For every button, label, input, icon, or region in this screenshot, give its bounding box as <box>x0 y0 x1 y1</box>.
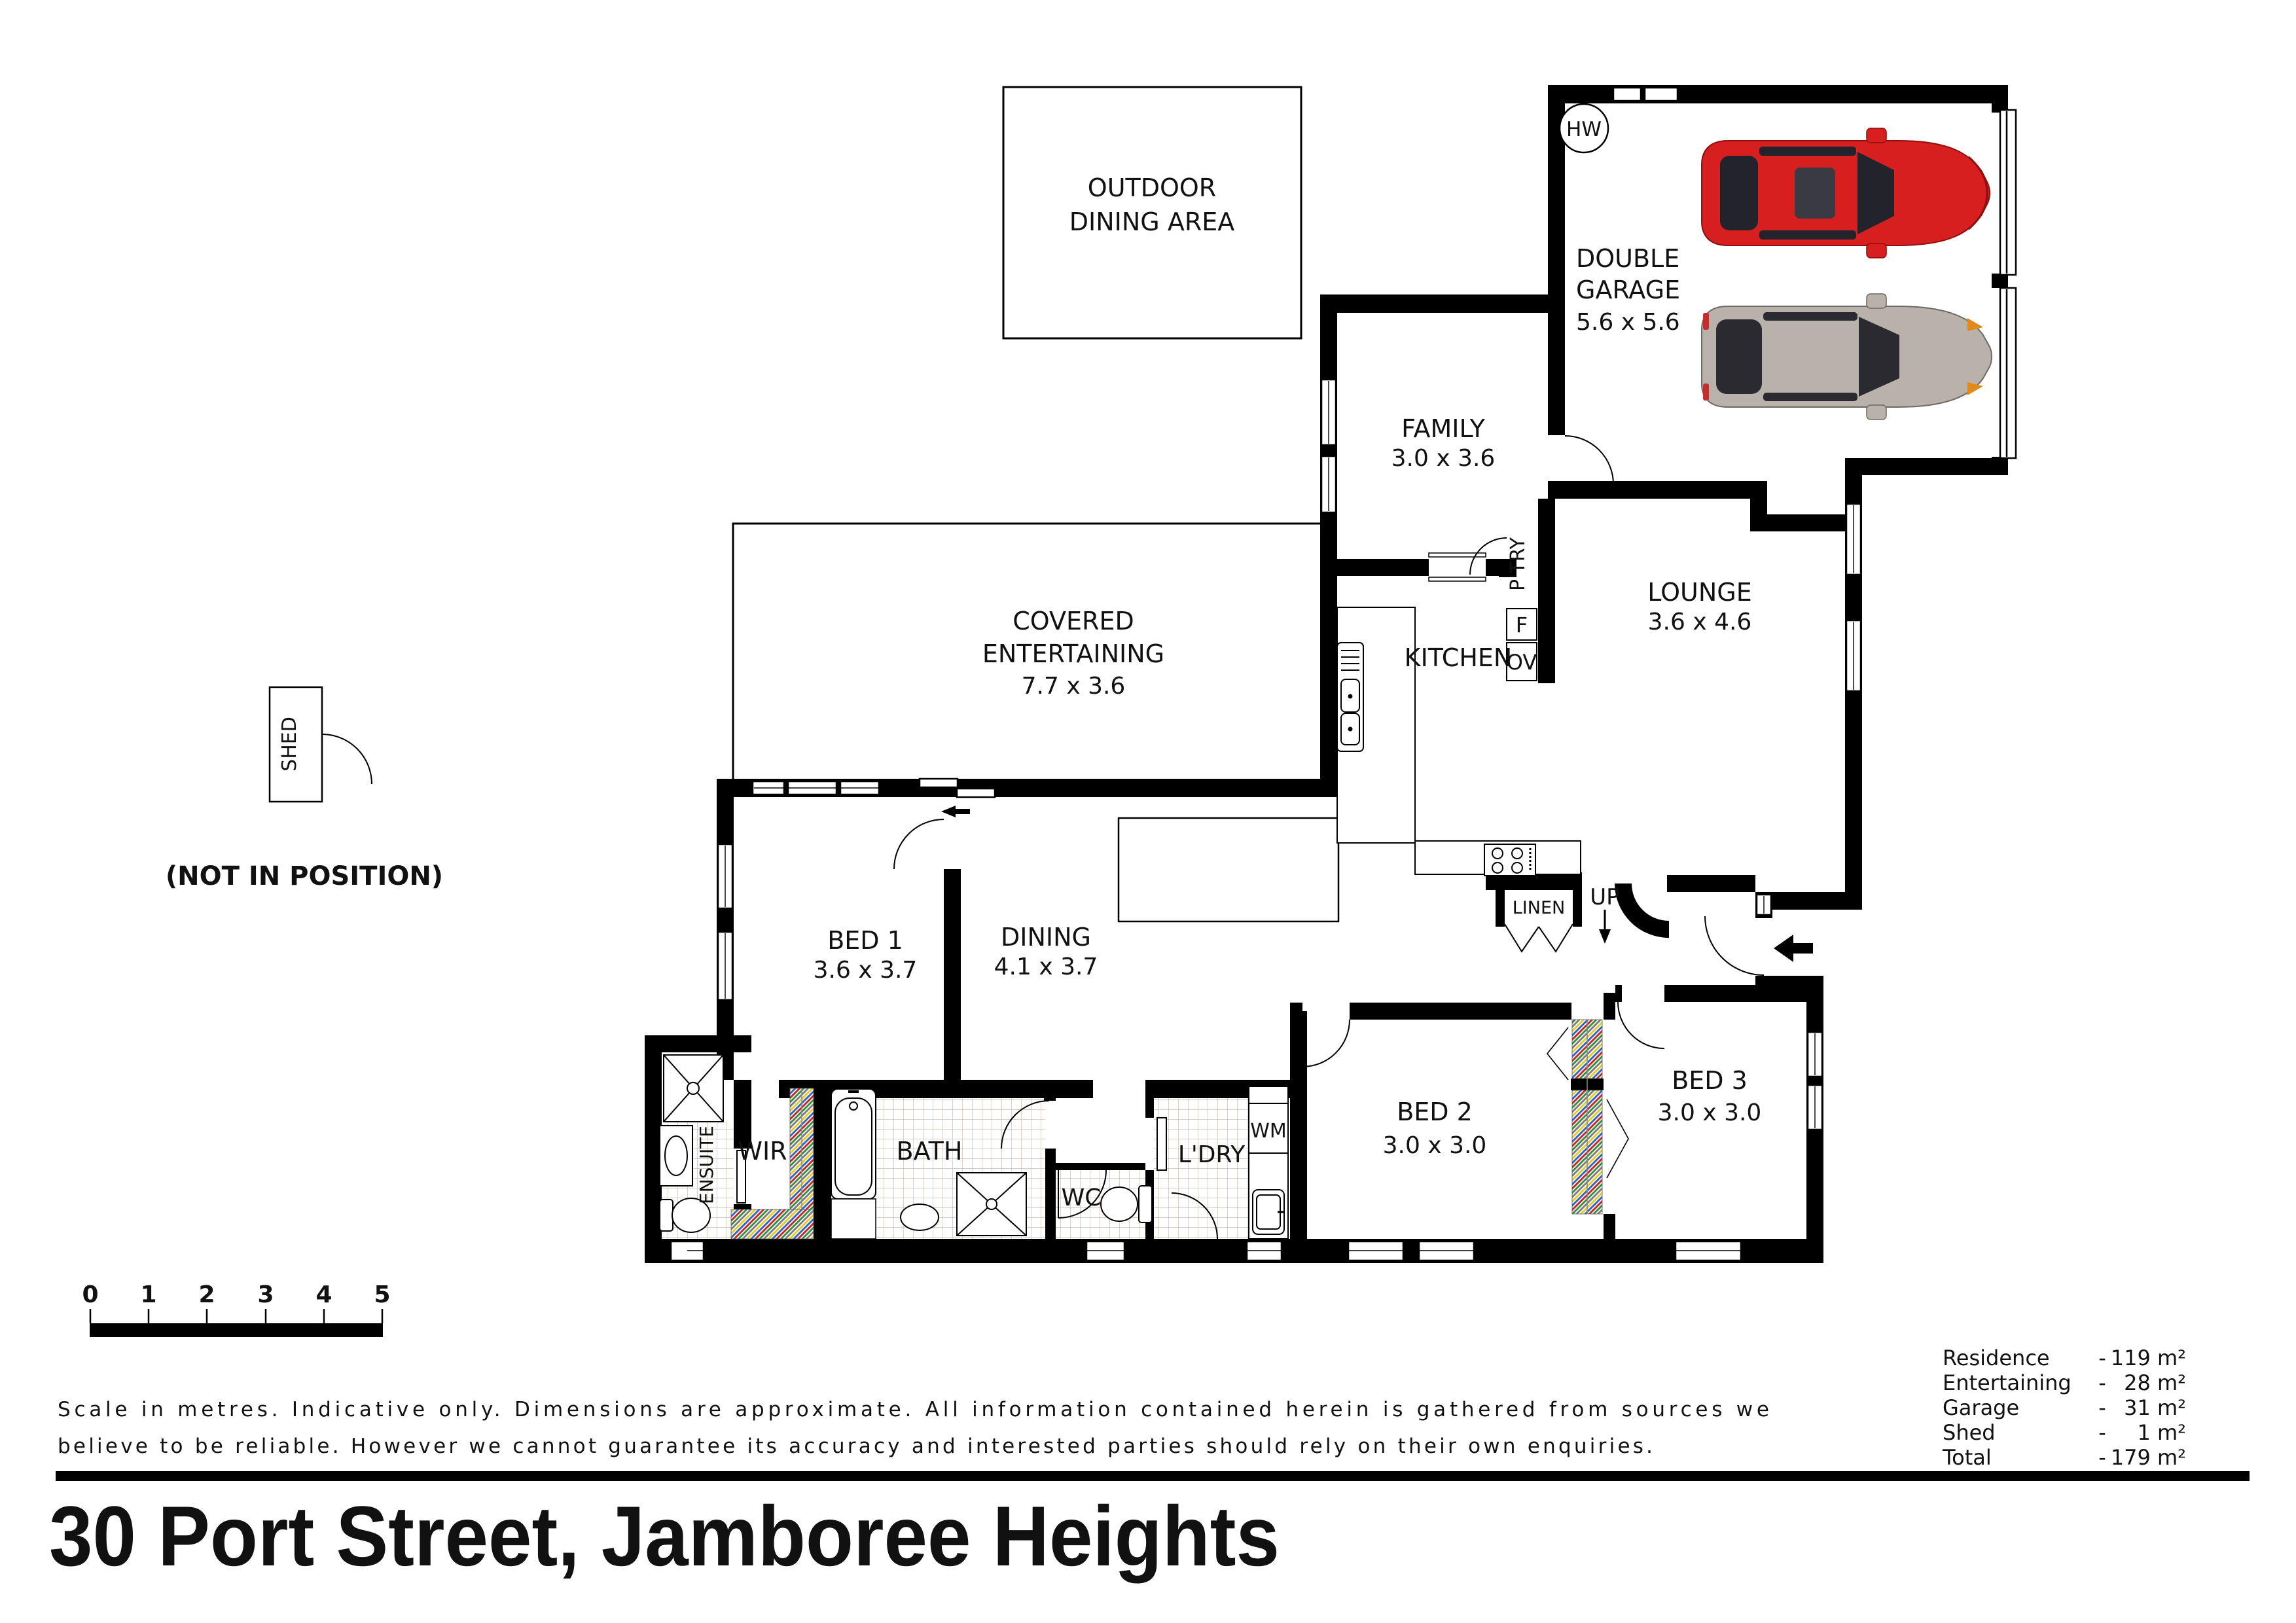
wc-label: WC <box>1062 1185 1102 1211</box>
ensuite-basin-icon <box>665 1136 687 1175</box>
garage-label-1: DOUBLE <box>1576 244 1679 273</box>
bath-bench <box>831 1199 876 1239</box>
laundry-tub-icon <box>1253 1190 1284 1234</box>
garage-dims: 5.6 x 5.6 <box>1576 309 1680 336</box>
bed1-door-arc <box>894 819 944 869</box>
stair-curved-wall <box>1623 883 1669 929</box>
ensuite-shower-icon <box>664 1055 723 1122</box>
area-row-value: 28 m² <box>2124 1370 2186 1395</box>
footer: Scale in metres. Indicative only. Dimens… <box>49 1398 2250 1584</box>
scale-5: 5 <box>374 1281 390 1308</box>
wc-toilet-icon <box>1101 1186 1152 1222</box>
family-dims: 3.0 x 3.6 <box>1391 445 1496 472</box>
covered-label-1: COVERED <box>1013 607 1134 635</box>
bed2-door-arc <box>1302 1020 1350 1067</box>
dining-label: DINING <box>1001 923 1091 952</box>
room-labels: OUTDOOR DINING AREA DOUBLE GARAGE 5.6 x … <box>166 118 1761 1211</box>
ensuite-label: ENSUITE <box>696 1126 717 1204</box>
linen-bifold-right <box>1539 924 1573 952</box>
silver-car <box>1702 294 1992 419</box>
area-row-sep: - <box>2098 1370 2106 1395</box>
bed2-label: BED 2 <box>1397 1097 1473 1126</box>
bed1-dims: 3.6 x 3.7 <box>814 957 918 984</box>
area-row-label: Total <box>1942 1445 1992 1470</box>
covered-dims: 7.7 x 3.6 <box>1022 673 1126 700</box>
scale-2: 2 <box>198 1281 215 1308</box>
area-row-value: 31 m² <box>2124 1395 2186 1420</box>
meals-void-outline <box>1119 818 1338 921</box>
scale-bar-rect <box>90 1323 383 1337</box>
wir-robe-horizontal <box>731 1209 814 1239</box>
area-row-label: Residence <box>1943 1346 2050 1370</box>
entry-door-arc <box>1705 916 1764 975</box>
area-row-sep: - <box>2098 1395 2106 1420</box>
entry-arrow-icon <box>1774 935 1813 962</box>
shed-label: SHED <box>278 717 301 772</box>
floorplan-svg: OUTDOOR DINING AREA DOUBLE GARAGE 5.6 x … <box>0 0 2296 1623</box>
areas-table: Residence - 119 m² Entertaining - 28 m² … <box>1942 1346 2186 1470</box>
kitchen-sink-icon <box>1337 643 1363 751</box>
bath-basin-icon <box>901 1204 939 1230</box>
outdoor-dining-label-1: OUTDOOR <box>1088 173 1216 202</box>
area-row-label: Entertaining <box>1943 1370 2072 1395</box>
up-label: UP <box>1590 884 1619 910</box>
footer-rule <box>56 1471 2250 1481</box>
bed3-robe-chevron <box>1607 1099 1628 1178</box>
bath-shower-icon <box>957 1173 1026 1236</box>
lounge-dims: 3.6 x 4.6 <box>1648 609 1752 635</box>
scale-1: 1 <box>140 1281 156 1308</box>
bed2-robe-chevron <box>1547 1027 1568 1080</box>
area-row-sep: - <box>2098 1346 2106 1370</box>
slider-arrow-icon <box>941 806 970 817</box>
page-title: 30 Port Street, Jamboree Heights <box>49 1488 1280 1584</box>
ldry-label: L'DRY <box>1178 1141 1246 1168</box>
area-row-value: 1 m² <box>2137 1420 2186 1445</box>
area-row-value: 119 m² <box>2111 1346 2186 1370</box>
area-row-value: 179 m² <box>2111 1445 2186 1470</box>
lounge-label: LOUNGE <box>1647 578 1751 607</box>
cased-opening <box>1429 553 1486 581</box>
dining-dims: 4.1 x 3.7 <box>994 954 1098 980</box>
garage-label-2: GARAGE <box>1576 276 1680 304</box>
bath-label: BATH <box>897 1137 963 1166</box>
family-label: FAMILY <box>1401 414 1485 443</box>
hw-label: HW <box>1566 118 1602 141</box>
bed3-door-arc <box>1618 1002 1664 1048</box>
laundry-door-leaf <box>1157 1118 1166 1170</box>
garage-family-door-arc <box>1565 436 1613 484</box>
scale-4: 4 <box>315 1281 332 1308</box>
not-in-position-label: (NOT IN POSITION) <box>166 861 443 891</box>
wm-label: WM <box>1250 1120 1287 1143</box>
area-row-sep: - <box>2098 1420 2106 1445</box>
shed-door-arc <box>322 734 372 784</box>
fridge-label: F <box>1516 613 1528 637</box>
outdoor-dining-label-2: DINING AREA <box>1069 207 1234 236</box>
scale-0: 0 <box>82 1281 98 1308</box>
bathtub-icon <box>831 1089 876 1199</box>
bed3-label: BED 3 <box>1672 1066 1748 1095</box>
kitchen-label: KITCHEN <box>1405 643 1513 672</box>
oven-label: OV <box>1507 650 1537 675</box>
bed1-label: BED 1 <box>827 926 903 955</box>
linen-bifold-left <box>1505 924 1539 952</box>
scale-3: 3 <box>257 1281 274 1308</box>
bed3-dims: 3.0 x 3.0 <box>1658 1099 1762 1126</box>
bed2-dims: 3.0 x 3.0 <box>1383 1132 1487 1159</box>
stair-arrow-head <box>1599 929 1611 944</box>
red-car <box>1702 128 1990 258</box>
scale-bar: 0 1 2 3 4 5 <box>82 1281 390 1337</box>
disclaimer-line-2: believe to be reliable. However we canno… <box>58 1435 1653 1458</box>
disclaimer-line-1: Scale in metres. Indicative only. Dimens… <box>58 1398 1769 1421</box>
linen-label: LINEN <box>1513 898 1565 918</box>
floorplan-page: OUTDOOR DINING AREA DOUBLE GARAGE 5.6 x … <box>0 0 2296 1623</box>
area-row-label: Shed <box>1943 1420 1996 1445</box>
covered-label-2: ENTERTAINING <box>982 639 1164 668</box>
area-row-sep: - <box>2098 1445 2106 1470</box>
area-row-label: Garage <box>1943 1395 2019 1420</box>
stove-icon <box>1484 844 1535 876</box>
walls <box>645 85 2008 1263</box>
pantry-label: P'TRY <box>1507 537 1530 591</box>
wir-label: WIR <box>738 1137 787 1166</box>
